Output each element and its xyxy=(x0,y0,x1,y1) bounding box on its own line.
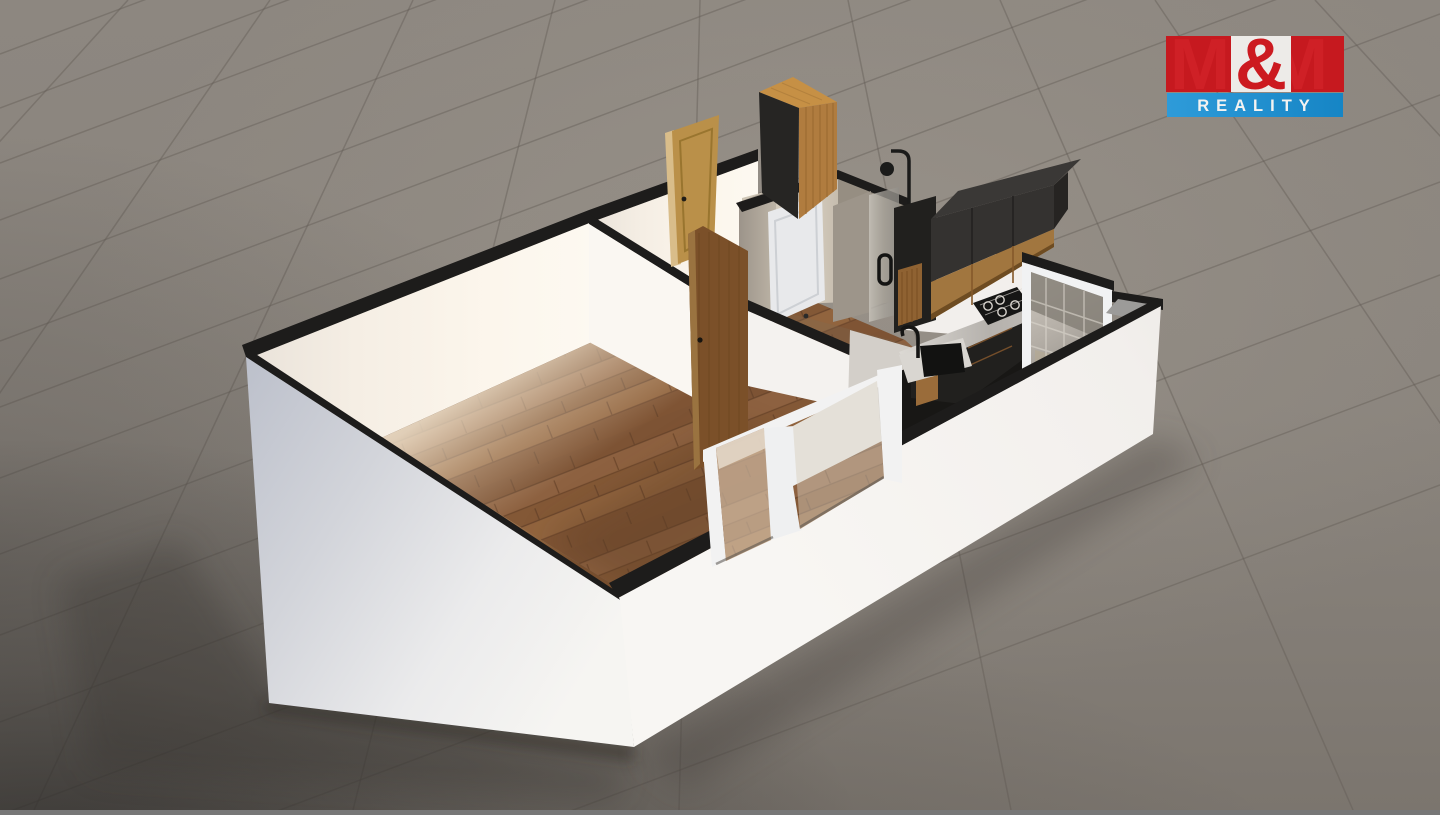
svg-text:REALITY: REALITY xyxy=(1197,97,1317,115)
